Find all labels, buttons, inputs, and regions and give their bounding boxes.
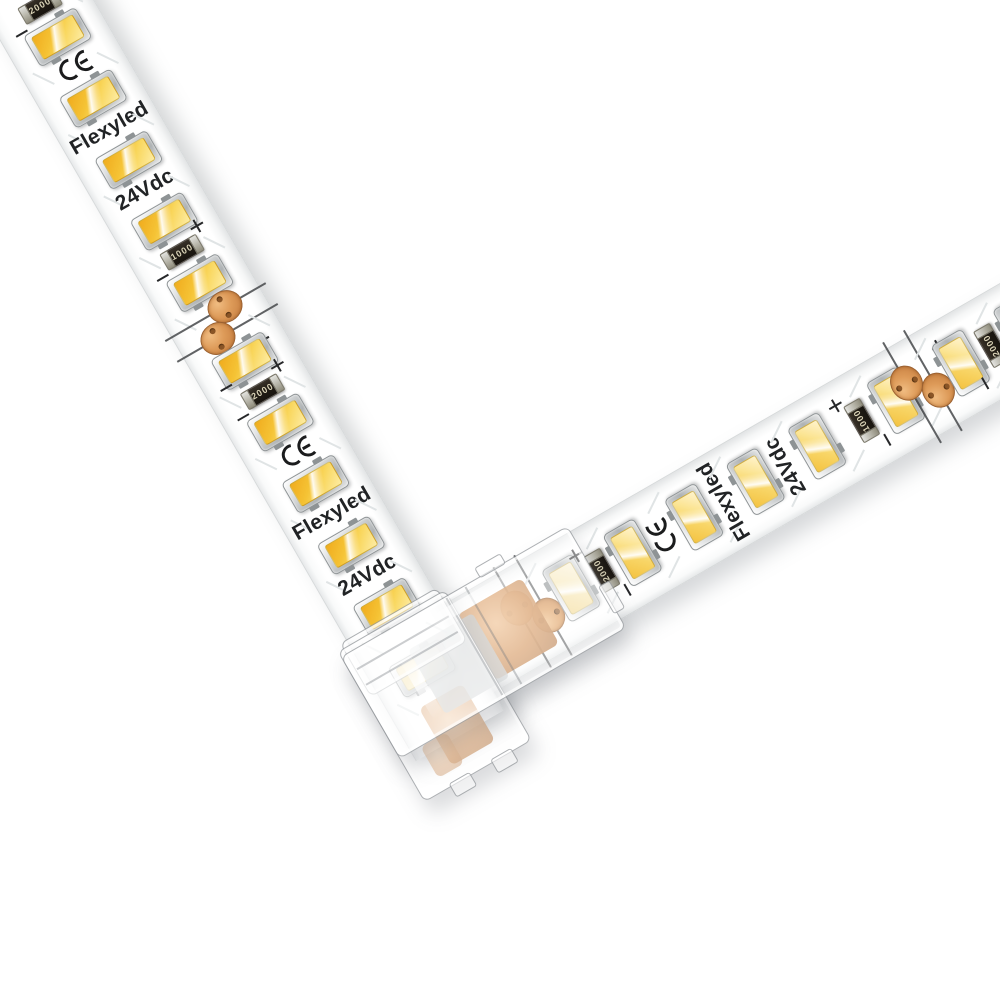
led-electrode: [276, 394, 287, 403]
resistor-label: 1000: [852, 408, 872, 433]
resistor-label: 1000: [169, 242, 194, 262]
resistor-label: 2000: [982, 333, 1000, 358]
minus-polarity-mark: [883, 433, 892, 445]
led-electrode: [196, 255, 207, 264]
led-phosphor: [137, 198, 192, 245]
led-electrode: [980, 359, 989, 370]
led-electrode: [994, 321, 1000, 332]
led-electrode: [868, 394, 877, 405]
led-electrode: [157, 240, 168, 249]
product-photo: 2000Flexyled24Vdc10002000 2000Flexyled24…: [0, 0, 1000, 1000]
led-electrode: [238, 380, 249, 389]
plus-polarity-mark: [826, 396, 845, 415]
resistor: 1000: [844, 398, 880, 442]
resistor-label: 2000: [250, 382, 275, 402]
resistor-label: 2000: [27, 0, 52, 16]
led-electrode: [605, 546, 614, 557]
led-electrode: [836, 442, 845, 453]
led-electrode: [54, 9, 65, 18]
